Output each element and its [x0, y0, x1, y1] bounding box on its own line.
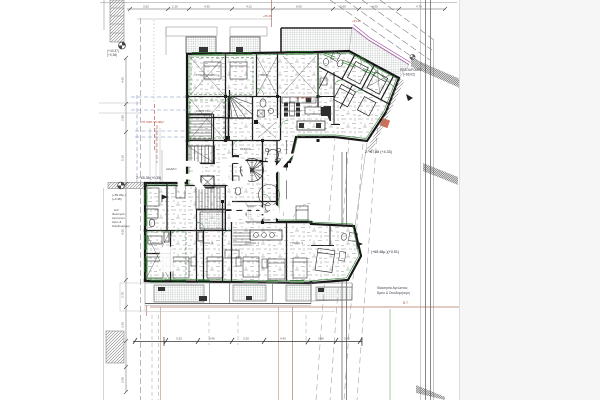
svg-text:(+0.38): (+0.38) [112, 197, 122, 201]
svg-text:+65.48: +65.48 [352, 19, 361, 23]
svg-text:+65.48: +65.48 [263, 14, 272, 18]
svg-text:2.70: 2.70 [121, 292, 125, 298]
svg-text:3.35: 3.35 [121, 322, 125, 328]
svg-text:2.80: 2.80 [121, 115, 125, 121]
svg-text:4.45: 4.45 [280, 337, 286, 341]
svg-text:Z:+67.88 (+4.33): Z:+67.88 (+4.33) [365, 150, 392, 154]
svg-text:6.00: 6.00 [296, 5, 302, 9]
svg-text:ΠΕΖΟΔΡΟΜΙΟ: ΠΕΖΟΔΡΟΜΙΟ [400, 68, 422, 72]
svg-text:2.80: 2.80 [318, 337, 324, 341]
svg-text:(+66.02): (+66.02) [403, 73, 415, 77]
svg-text:ROK: ROK [173, 144, 312, 199]
svg-text:Real: Real [230, 196, 293, 228]
svg-text:2.55: 2.55 [344, 337, 350, 341]
svg-text:ΥΠ.ΧΩΡ. 95.08μ²: ΥΠ.ΧΩΡ. 95.08μ² [141, 120, 164, 124]
svg-text:9.65: 9.65 [121, 229, 125, 235]
svg-text:4.60: 4.60 [121, 77, 125, 83]
svg-text:Οικοδομήσιμο: Οικοδομήσιμο [112, 224, 130, 228]
svg-text:3.25: 3.25 [176, 337, 182, 341]
svg-text:Β.Τ.: Β.Τ. [403, 301, 409, 305]
svg-text:4.12: 4.12 [246, 5, 252, 9]
svg-text:2.50: 2.50 [121, 377, 125, 383]
svg-text:5.10: 5.10 [121, 155, 125, 161]
svg-text:Άρτιο & Οικοδομήσιμη: Άρτιο & Οικοδομήσιμη [377, 291, 410, 295]
svg-text:3.52: 3.52 [143, 5, 149, 9]
svg-text:Ιδιοκτησία Αγνώστου: Ιδιοκτησία Αγνώστου [377, 286, 408, 290]
svg-text:4.70: 4.70 [416, 5, 422, 9]
svg-text:2.60: 2.60 [340, 5, 346, 9]
svg-text:4.05: 4.05 [372, 5, 378, 9]
svg-text:(+0.36): (+0.36) [107, 53, 117, 57]
svg-text:3.20: 3.20 [243, 337, 249, 341]
svg-text:4.35: 4.35 [204, 5, 210, 9]
svg-text:3.40: 3.40 [209, 337, 215, 341]
svg-text:(+65.48μ.)(+0.51): (+65.48μ.)(+0.51) [371, 250, 399, 254]
svg-text:2.10: 2.10 [172, 5, 178, 9]
svg-text:Z:+65.36 (+0.35): Z:+65.36 (+0.35) [136, 176, 161, 180]
